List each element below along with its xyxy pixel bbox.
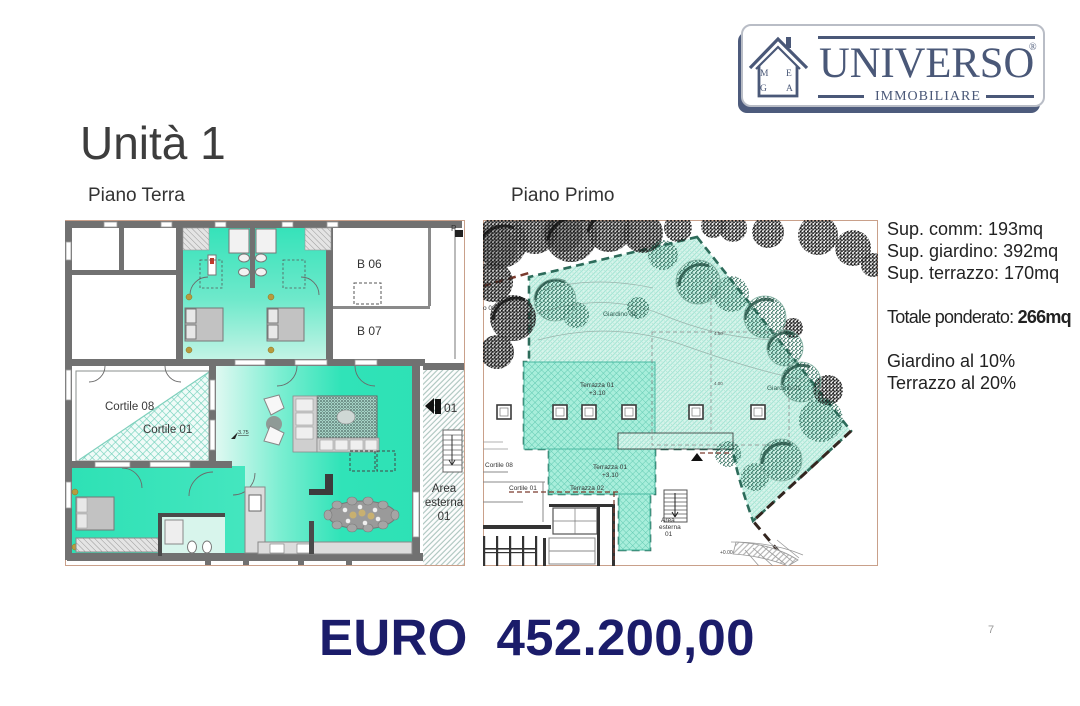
- svg-text:Terrazza 02: Terrazza 02: [570, 485, 604, 492]
- svg-text:+3.10: +3.10: [589, 390, 606, 397]
- svg-text:Giardino 01: Giardino 01: [767, 385, 801, 392]
- svg-text:4.00: 4.00: [714, 381, 723, 386]
- svg-text:Area: Area: [661, 517, 675, 524]
- svg-text:G: G: [760, 84, 767, 94]
- svg-text:4.50: 4.50: [714, 331, 723, 336]
- svg-text:Cortile 01: Cortile 01: [143, 424, 192, 436]
- svg-text:Terrazza 01: Terrazza 01: [580, 382, 614, 389]
- svg-text:Cortile 08: Cortile 08: [485, 462, 513, 469]
- svg-text:Cortile 01: Cortile 01: [509, 485, 537, 492]
- svg-text:esterna: esterna: [659, 524, 681, 531]
- svg-text:01: 01: [438, 511, 451, 523]
- svg-text:Giardino 01: Giardino 01: [603, 311, 637, 318]
- svg-text:B 06: B 06: [357, 257, 382, 271]
- svg-text:B 07: B 07: [357, 324, 382, 338]
- svg-text:3.75: 3.75: [238, 430, 249, 436]
- svg-text:Terrazza 01: Terrazza 01: [593, 464, 627, 471]
- svg-text:+0.00: +0.00: [720, 550, 733, 556]
- svg-text:E: E: [786, 69, 792, 79]
- svg-text:esterna: esterna: [425, 497, 464, 509]
- svg-text:M: M: [760, 69, 769, 79]
- svg-text:o 08: o 08: [483, 305, 496, 312]
- svg-text:01: 01: [444, 401, 458, 415]
- svg-text:01: 01: [665, 531, 673, 538]
- svg-text:Area: Area: [432, 483, 457, 495]
- svg-text:+3.10: +3.10: [602, 472, 619, 479]
- svg-text:Cortile 08: Cortile 08: [105, 401, 154, 413]
- svg-text:A: A: [786, 84, 793, 94]
